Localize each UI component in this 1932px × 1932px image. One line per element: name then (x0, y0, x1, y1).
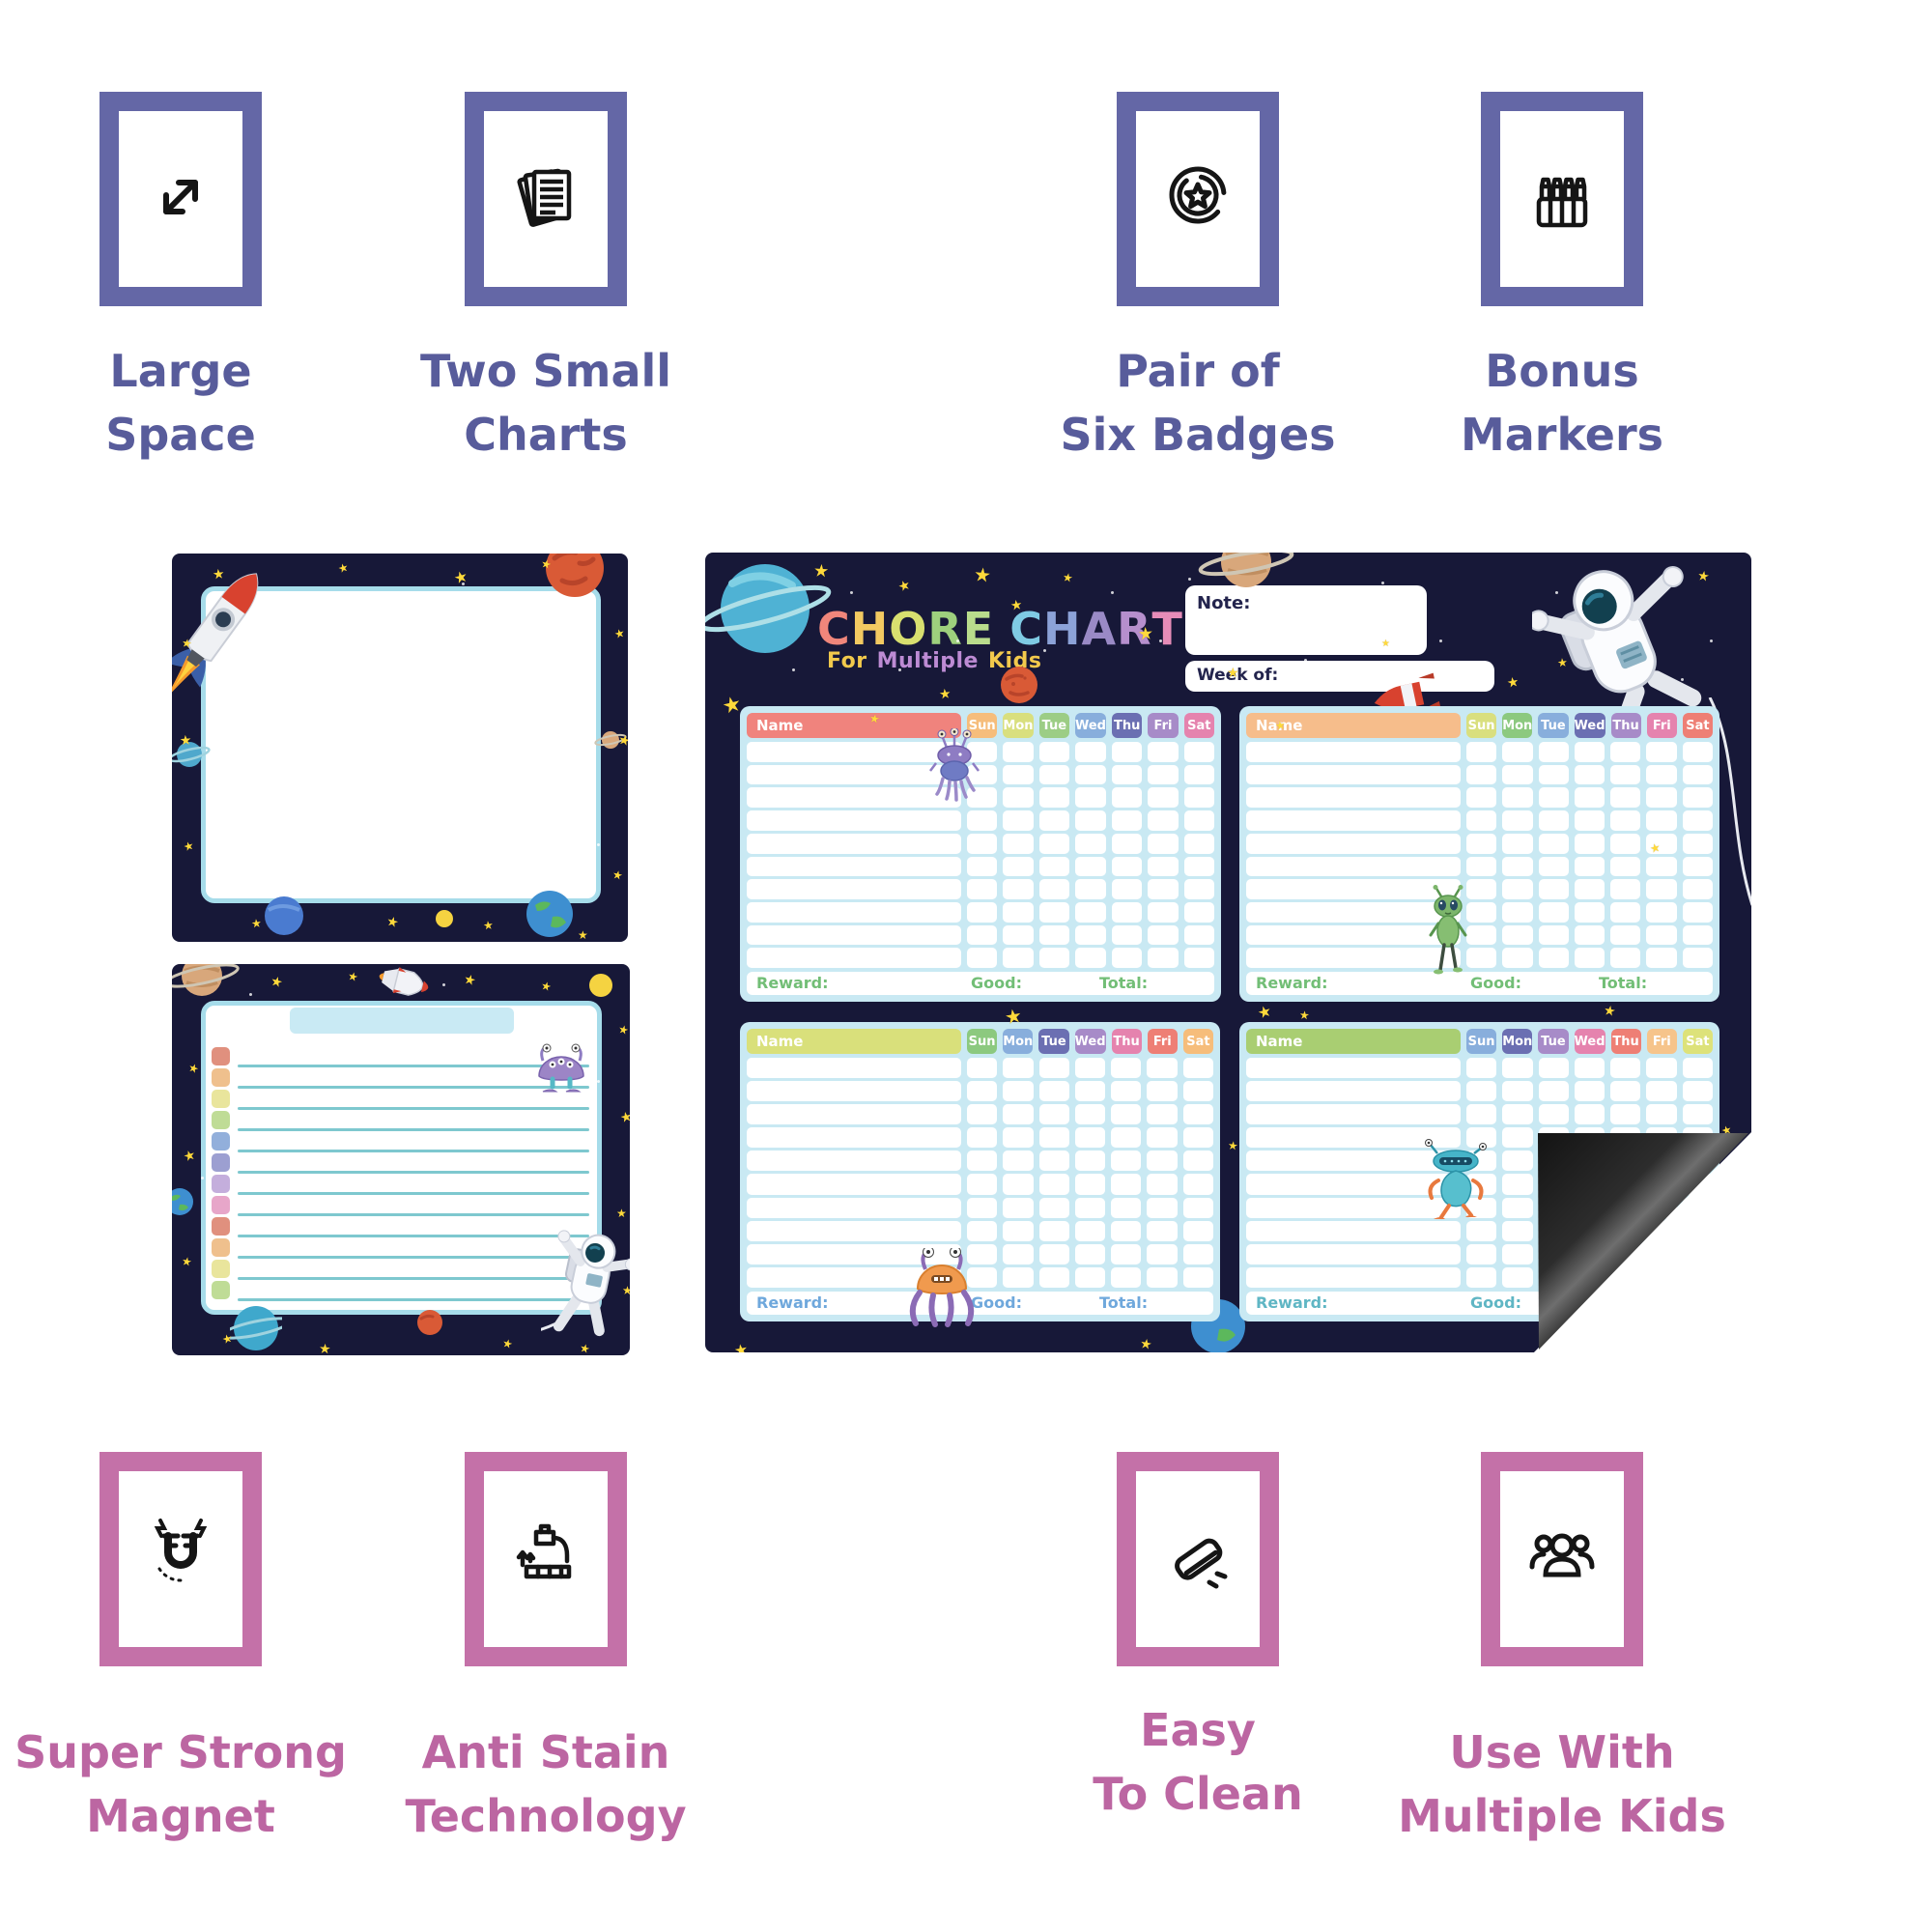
feature-label-line1: Super Strong (7, 1720, 355, 1784)
ellipse-decoration (941, 761, 968, 781)
name-column-header: Name (747, 1029, 961, 1054)
chore-day-cell (1039, 834, 1069, 854)
chore-day-cell (1683, 1244, 1713, 1264)
star-icon: ★ (347, 970, 359, 983)
green-alien (1422, 885, 1474, 978)
circle-decoration (1451, 1160, 1454, 1163)
chore-day-cell (1075, 857, 1105, 877)
task-color-square (212, 1068, 230, 1087)
chore-day-cell (1502, 1244, 1532, 1264)
star-icon: ★ (540, 980, 553, 993)
star-icon: ★ (1720, 1123, 1734, 1138)
path-decoration (1542, 180, 1549, 199)
chore-day-cell (1575, 1081, 1605, 1101)
chore-day-cell (1610, 857, 1640, 877)
chore-day-cell (1575, 925, 1605, 946)
path-decoration (536, 1532, 554, 1544)
svg-decoration (1150, 149, 1246, 245)
grid-row (1246, 742, 1713, 762)
chore-day-cell (1039, 1151, 1069, 1171)
footer-label: Good: (1470, 974, 1521, 992)
chore-day-cell (1003, 1127, 1033, 1148)
chore-day-cell (967, 834, 997, 854)
circle-decoration (1428, 1142, 1431, 1145)
chore-day-cell (1646, 1198, 1676, 1218)
chore-day-cell (1539, 1198, 1569, 1218)
chore-day-cell (1111, 1104, 1141, 1124)
grid-row (1246, 1244, 1713, 1264)
feature-label: Super StrongMagnet (7, 1720, 355, 1848)
star-icon: ★ (1298, 1009, 1310, 1022)
task-line (238, 1298, 589, 1301)
chore-day-cell (1112, 948, 1142, 968)
chore-day-cell (1147, 1104, 1177, 1124)
chore-day-cell (1502, 1104, 1532, 1124)
chore-day-cell (1575, 1174, 1605, 1194)
chore-day-cell (1683, 742, 1713, 762)
small-list-chart: ★★★★★★★★★★★★★★★ (172, 964, 630, 1355)
feature-label-line2: Charts (372, 403, 720, 467)
task-color-square (212, 1111, 230, 1129)
chore-day-cell (1003, 1221, 1033, 1241)
day-header-thu: Thu (1611, 713, 1641, 738)
chore-day-cell (1112, 902, 1142, 923)
chart-title-letter: H (1043, 603, 1082, 655)
chore-day-cell (1646, 1174, 1676, 1194)
chore-day-cell (967, 1151, 997, 1171)
chart-title-letter: R (927, 603, 962, 655)
feature-bottom-2: Anti StainTechnology (372, 1452, 720, 1848)
day-header-sat: Sat (1184, 713, 1214, 738)
footer-label: Reward: (756, 1293, 829, 1312)
chore-day-cell (1646, 1151, 1676, 1171)
chore-day-cell (1683, 1151, 1713, 1171)
star-icon: ★ (812, 562, 829, 581)
star-dot (1439, 639, 1442, 642)
main-chore-chart: CHORE CHART ForMultipleKids Note: Week o… (705, 553, 1751, 1352)
chore-day-cell (1075, 834, 1105, 854)
star-dot (1188, 578, 1191, 581)
chore-day-cell (1147, 1127, 1177, 1148)
path-decoration (1441, 1206, 1471, 1217)
chart-title-letter: O (889, 603, 927, 655)
chore-name-cell (1246, 857, 1461, 877)
chore-day-cell (1183, 1151, 1213, 1171)
chore-name-cell (1246, 1081, 1461, 1101)
chore-day-cell (1575, 1267, 1605, 1288)
chore-day-cell (1075, 765, 1105, 785)
chore-day-cell (1502, 879, 1532, 899)
chore-day-cell (1646, 787, 1676, 808)
chore-day-cell (1610, 787, 1640, 808)
star-icon: ★ (616, 733, 628, 750)
star-icon: ★ (622, 1285, 630, 1296)
path-decoration (393, 969, 425, 998)
star-icon: ★ (611, 868, 624, 882)
chore-day-cell (1075, 1267, 1105, 1288)
chore-day-cell (1466, 1058, 1496, 1078)
star-icon: ★ (482, 919, 494, 931)
chore-day-cell (1502, 787, 1532, 808)
grid-row (747, 1104, 1213, 1124)
day-header-fri: Fri (1647, 1029, 1677, 1054)
star-dot (249, 993, 252, 996)
task-line (238, 1107, 589, 1110)
chore-day-cell (1502, 1127, 1532, 1148)
grid-row (1246, 787, 1713, 808)
ellipse-decoration (1437, 916, 1459, 947)
chore-day-cell (1111, 1267, 1141, 1288)
chore-day-cell (1575, 1127, 1605, 1148)
svg-decoration (497, 1509, 594, 1605)
chore-day-cell (1575, 810, 1605, 831)
chore-day-cell (1112, 765, 1142, 785)
chore-day-cell (1075, 1174, 1105, 1194)
star-icon: ★ (384, 915, 400, 931)
grid-row (747, 1244, 1213, 1264)
chore-day-cell (1003, 1058, 1033, 1078)
chore-day-cell (967, 1198, 997, 1218)
faucet-icon (497, 1509, 594, 1609)
grid-footer: Reward:Good:Total: (1246, 972, 1713, 995)
day-header-fri: Fri (1148, 713, 1178, 738)
chore-day-cell (1610, 1221, 1640, 1241)
circle-decoration (958, 753, 961, 755)
chore-day-cell (1610, 834, 1640, 854)
chore-day-cell (1111, 1151, 1141, 1171)
chore-day-cell (967, 1104, 997, 1124)
list-title-bar (290, 1008, 514, 1034)
chore-day-cell (1147, 1267, 1177, 1288)
chore-chart-title: CHORE CHART (817, 603, 1183, 655)
star-icon: ★ (973, 564, 992, 585)
chore-day-cell (1502, 1198, 1532, 1218)
chore-day-cell (1003, 1198, 1033, 1218)
chore-day-cell (1539, 1151, 1569, 1171)
feature-label-line2: Markers (1388, 403, 1736, 467)
chore-day-cell (1539, 1104, 1569, 1124)
feature-icon-box (99, 92, 262, 306)
feature-label-line1: Easy (1024, 1698, 1372, 1762)
task-line (238, 1277, 589, 1280)
star-icon: ★ (269, 975, 284, 991)
grid-row (1246, 948, 1713, 968)
svg-decoration (1150, 1509, 1246, 1605)
chore-day-cell (1502, 857, 1532, 877)
chore-day-cell (1575, 1151, 1605, 1171)
earth-small-icon (172, 1186, 195, 1217)
feature-icon-box (1481, 92, 1643, 306)
chore-day-cell (1466, 810, 1496, 831)
chore-day-cell (1075, 948, 1105, 968)
path-decoration (1553, 180, 1561, 199)
chore-day-cell (1183, 1127, 1213, 1148)
chore-day-cell (1112, 857, 1142, 877)
star-icon: ★ (1603, 1004, 1617, 1019)
circle-decoration (265, 896, 303, 935)
chore-day-cell (1075, 1244, 1105, 1264)
chore-name-cell (747, 1127, 961, 1148)
chore-day-cell (1539, 1244, 1569, 1264)
chore-day-cell (1075, 1104, 1105, 1124)
chore-day-cell (1466, 1104, 1496, 1124)
note-box: Note: (1185, 585, 1427, 655)
chore-name-cell (747, 1104, 961, 1124)
circle-decoration (1001, 667, 1037, 703)
chore-day-cell (1646, 948, 1676, 968)
star-icon: ★ (1256, 1003, 1273, 1021)
chore-day-cell (1646, 902, 1676, 923)
chore-day-cell (1539, 1267, 1569, 1288)
teal-alien (1422, 1138, 1490, 1227)
red-planet-small-icon (415, 1308, 444, 1337)
chore-day-cell (1039, 1174, 1069, 1194)
chore-day-cell (1646, 1058, 1676, 1078)
star-icon: ★ (337, 561, 351, 576)
feature-top-1: LargeSpace (7, 92, 355, 467)
chore-day-cell (1003, 1151, 1033, 1171)
footer-label: Total: (1599, 974, 1647, 992)
chore-day-cell (1003, 902, 1033, 923)
circle-decoration (1434, 885, 1438, 890)
chore-name-cell (747, 879, 961, 899)
day-header-tue: Tue (1038, 1029, 1068, 1054)
svg-decoration (132, 149, 229, 245)
chore-day-cell (1039, 787, 1069, 808)
circle-decoration (1440, 902, 1442, 904)
star-icon: ★ (1137, 625, 1153, 643)
circle-decoration (1175, 172, 1222, 219)
chore-day-cell (1075, 1151, 1105, 1171)
grid-row (1246, 902, 1713, 923)
chore-name-cell (747, 902, 961, 923)
feature-top-3: Pair ofSix Badges (1024, 92, 1372, 467)
task-line (238, 1171, 589, 1174)
chore-day-cell (1575, 1198, 1605, 1218)
chore-day-cell (1075, 902, 1105, 923)
star-icon: ★ (619, 1110, 630, 1125)
chore-day-cell (1148, 810, 1178, 831)
chart-title-letter: H (851, 603, 890, 655)
star-icon: ★ (1003, 1006, 1023, 1028)
circle-decoration (1574, 1537, 1587, 1550)
chore-day-cell (1575, 1104, 1605, 1124)
day-header-sun: Sun (1466, 1029, 1496, 1054)
chore-name-cell (747, 834, 961, 854)
circle-decoration (526, 891, 573, 937)
chore-day-cell (1575, 879, 1605, 899)
circle-decoration (1552, 1536, 1572, 1555)
chore-day-cell (1039, 1267, 1069, 1288)
chore-day-cell (1502, 1151, 1532, 1171)
chore-day-cell (1466, 742, 1496, 762)
footer-label: Good: (1470, 1293, 1521, 1312)
chart-title-letter: E (963, 603, 994, 655)
chore-day-cell (1111, 1081, 1141, 1101)
grid-row (1246, 765, 1713, 785)
chore-day-cell (967, 857, 997, 877)
chore-name-cell (747, 857, 961, 877)
chore-day-cell (1683, 1221, 1713, 1241)
path-decoration (1209, 1574, 1225, 1586)
chore-day-cell (1683, 834, 1713, 854)
feature-icon-box (465, 92, 627, 306)
feature-label: BonusMarkers (1388, 339, 1736, 467)
feature-label-line1: Large (7, 339, 355, 403)
badge-icon (1150, 149, 1246, 249)
chore-day-cell (1610, 1151, 1640, 1171)
chore-name-cell (747, 1174, 961, 1194)
star-dot (1304, 659, 1307, 662)
chore-day-cell (967, 1081, 997, 1101)
chore-day-cell (1539, 879, 1569, 899)
circle-decoration (436, 910, 453, 927)
chore-day-cell (1539, 787, 1569, 808)
circle-decoration (947, 753, 950, 755)
teal-planet-icon (230, 1302, 282, 1354)
chore-day-cell (1111, 1058, 1141, 1078)
star-icon: ★ (183, 839, 196, 854)
chore-day-cell (1575, 787, 1605, 808)
circle-decoration (1458, 1160, 1461, 1163)
chore-day-cell (1075, 810, 1105, 831)
chore-day-cell (1539, 1221, 1569, 1241)
chore-day-cell (1003, 1244, 1033, 1264)
chore-day-cell (1075, 1198, 1105, 1218)
chore-day-cell (1148, 787, 1178, 808)
star-dot (956, 639, 959, 642)
chore-day-cell (1112, 925, 1142, 946)
expand-icon (132, 149, 229, 249)
chore-name-cell (1246, 1104, 1461, 1124)
chore-day-cell (1039, 1104, 1069, 1124)
feature-top-2: Two SmallCharts (372, 92, 720, 467)
chore-day-cell (1111, 1174, 1141, 1194)
day-header-mon: Mon (1003, 713, 1033, 738)
chore-day-cell (1003, 834, 1033, 854)
grid-row (747, 834, 1214, 854)
chore-day-cell (1683, 1198, 1713, 1218)
chore-day-cell (1502, 810, 1532, 831)
path-decoration (166, 183, 195, 212)
chore-day-cell (1184, 948, 1214, 968)
feature-label: Two SmallCharts (372, 339, 720, 467)
feature-label-line2: Multiple Kids (1388, 1784, 1736, 1848)
chore-day-cell (1502, 1174, 1532, 1194)
saturn-top-icon (1193, 553, 1299, 591)
task-line (238, 1128, 589, 1131)
chore-day-cell (1610, 1174, 1640, 1194)
chore-day-cell (1502, 925, 1532, 946)
chore-day-cell (1683, 948, 1713, 968)
chore-day-cell (1575, 902, 1605, 923)
eraser-icon (1150, 1509, 1246, 1609)
path-decoration (168, 1536, 193, 1565)
chore-name-cell (1246, 1244, 1461, 1264)
chore-day-cell (1610, 742, 1640, 762)
path-decoration (1580, 1554, 1592, 1567)
earth-icon (524, 888, 576, 940)
day-header-wed: Wed (1575, 1029, 1605, 1054)
svg-decoration (1514, 149, 1610, 245)
circle-decoration (1459, 885, 1463, 890)
day-header-wed: Wed (1075, 713, 1106, 738)
circle-decoration (172, 1188, 193, 1215)
chore-day-cell (967, 879, 997, 899)
star-icon: ★ (180, 734, 193, 749)
feature-label: EasyTo Clean (1024, 1698, 1372, 1826)
star-icon: ★ (1227, 1139, 1238, 1151)
g-decoration (376, 964, 431, 999)
star-icon: ★ (181, 1255, 193, 1268)
chore-day-cell (1683, 879, 1713, 899)
chore-day-cell (1610, 1244, 1640, 1264)
chore-name-cell (747, 1081, 961, 1101)
chore-day-cell (1003, 787, 1033, 808)
circle-decoration (941, 733, 944, 736)
star-icon: ★ (462, 973, 477, 989)
path-decoration (1565, 180, 1573, 199)
grid-header: NameSunMonTueWedThuFriSat (1246, 1029, 1713, 1054)
chore-name-cell (1246, 1267, 1461, 1288)
chore-day-cell (1039, 810, 1069, 831)
chore-day-cell (1147, 1058, 1177, 1078)
chore-day-cell (1184, 810, 1214, 831)
markers-icon (1514, 149, 1610, 249)
footer-label: Total: (1099, 1293, 1148, 1312)
chore-day-cell (1111, 1221, 1141, 1241)
path-decoration (1441, 1171, 1471, 1207)
feature-label-line2: Magnet (7, 1784, 355, 1848)
chore-day-cell (1683, 925, 1713, 946)
chore-day-cell (1184, 879, 1214, 899)
day-header-wed: Wed (1575, 713, 1605, 738)
chore-day-cell (1183, 1244, 1213, 1264)
chore-day-cell (967, 1127, 997, 1148)
chore-day-cell (1683, 1174, 1713, 1194)
chore-day-cell (1683, 1058, 1713, 1078)
chore-name-cell (1246, 810, 1461, 831)
star-icon: ★ (1274, 719, 1287, 732)
chore-day-cell (1466, 1267, 1496, 1288)
chore-day-cell (1610, 1058, 1640, 1078)
star-dot (1111, 591, 1114, 594)
chore-day-cell (1147, 1081, 1177, 1101)
chore-day-cell (1183, 1058, 1213, 1078)
star-icon: ★ (896, 578, 913, 594)
chore-name-cell (1246, 1058, 1461, 1078)
feature-icon-box (1117, 92, 1279, 306)
chore-day-cell (1184, 857, 1214, 877)
grid-row (1246, 1267, 1713, 1288)
rocket-small-icon (373, 964, 431, 999)
feature-bottom-3: EasyTo Clean (1024, 1452, 1372, 1826)
grid-row (1246, 879, 1713, 899)
task-line (238, 1235, 589, 1237)
chore-day-cell (1148, 742, 1178, 762)
chore-day-cell (1502, 765, 1532, 785)
feature-label: LargeSpace (7, 339, 355, 467)
star-icon: ★ (452, 568, 469, 586)
chore-day-cell (1003, 1267, 1033, 1288)
chore-day-cell (1466, 834, 1496, 854)
chore-day-cell (1539, 742, 1569, 762)
chore-day-cell (1075, 1081, 1105, 1101)
chore-day-cell (1646, 925, 1676, 946)
chart-subtitle-word: Multiple (877, 649, 979, 673)
chore-day-cell (1003, 925, 1033, 946)
star-dot (597, 1080, 600, 1083)
